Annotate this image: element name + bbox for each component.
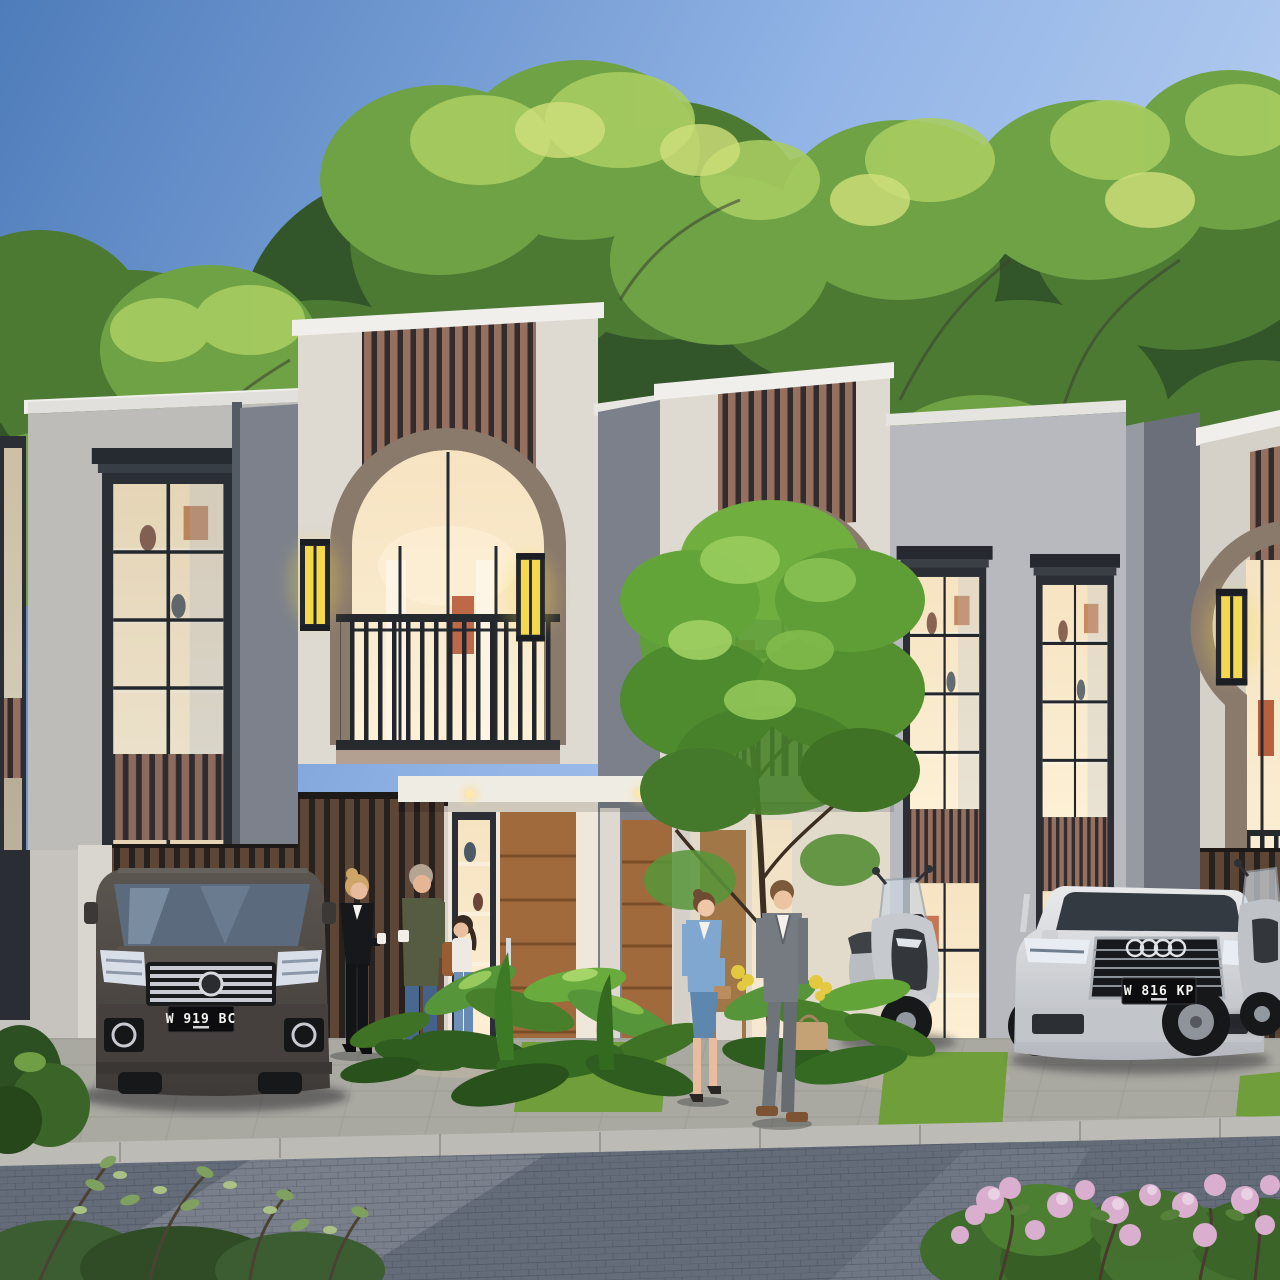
mpv-license-plate: W 919 BC xyxy=(166,1006,237,1032)
unit-b xyxy=(289,302,604,764)
leather-bag xyxy=(792,1022,828,1050)
suv-license-plate: W 816 KP xyxy=(1122,978,1196,1004)
scooter-windshield xyxy=(880,878,926,918)
scene-canvas: W 919 BC W 816 KP xyxy=(0,0,1280,1280)
grass-strip-far-right xyxy=(1236,1072,1280,1118)
mpv-mirror-right xyxy=(322,902,336,924)
mpv-plate-text: W 919 BC xyxy=(166,1012,237,1027)
architectural-render: W 919 BC W 816 KP xyxy=(0,0,1280,1280)
mpv-mirror-left xyxy=(84,902,98,924)
suv-car: W 816 KP xyxy=(1008,886,1266,1060)
mpv-logo xyxy=(200,973,222,995)
suv-windows xyxy=(1056,892,1242,932)
mpv-headlight-right xyxy=(276,950,322,986)
suv-plate-text: W 816 KP xyxy=(1124,984,1195,999)
mpv-headlight-left xyxy=(100,950,146,986)
mpv-car: W 919 BC xyxy=(84,868,336,1096)
